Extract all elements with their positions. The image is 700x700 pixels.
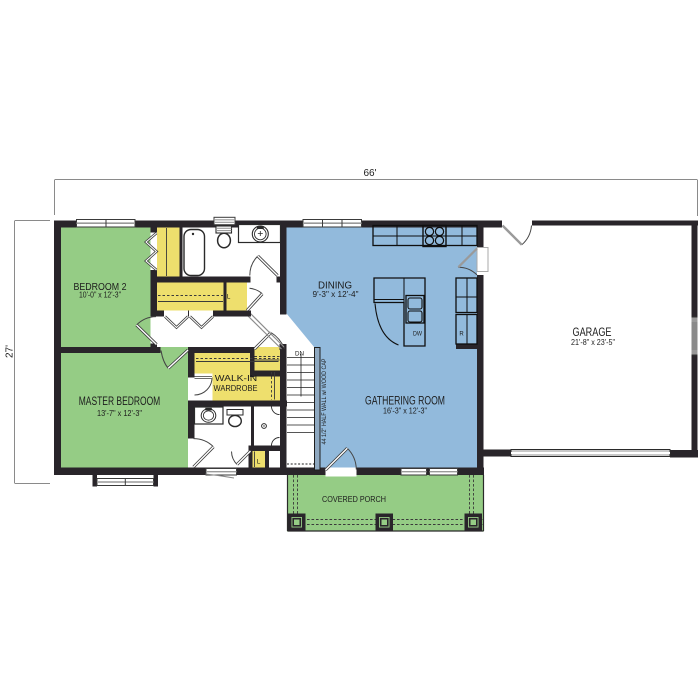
svg-text:DW: DW	[413, 332, 422, 338]
svg-text:COVERED PORCH: COVERED PORCH	[322, 495, 386, 504]
svg-text:9'-3" x 12'-4": 9'-3" x 12'-4"	[313, 290, 359, 299]
svg-text:L: L	[227, 294, 231, 301]
svg-text:R: R	[459, 332, 464, 338]
svg-text:10'-0" x 12'-3": 10'-0" x 12'-3"	[79, 291, 121, 300]
svg-text:27': 27'	[5, 345, 16, 358]
svg-text:DN: DN	[295, 351, 304, 358]
svg-text:44 1/2" HALF WALL w/ WOOD CAP: 44 1/2" HALF WALL w/ WOOD CAP	[322, 359, 328, 445]
svg-text:66': 66'	[363, 168, 376, 179]
svg-text:WALK-IN: WALK-IN	[215, 374, 258, 383]
svg-text:WARDROBE: WARDROBE	[214, 384, 258, 393]
svg-text:L: L	[257, 459, 261, 466]
svg-text:MASTER BEDROOM: MASTER BEDROOM	[79, 396, 161, 408]
svg-text:16'-3" x 12'-3": 16'-3" x 12'-3"	[383, 407, 427, 416]
svg-text:GARAGE: GARAGE	[573, 325, 612, 339]
svg-text:13'-7" x 12'-3": 13'-7" x 12'-3"	[97, 409, 142, 418]
svg-text:21'-8" x 23'-5": 21'-8" x 23'-5"	[571, 338, 615, 347]
